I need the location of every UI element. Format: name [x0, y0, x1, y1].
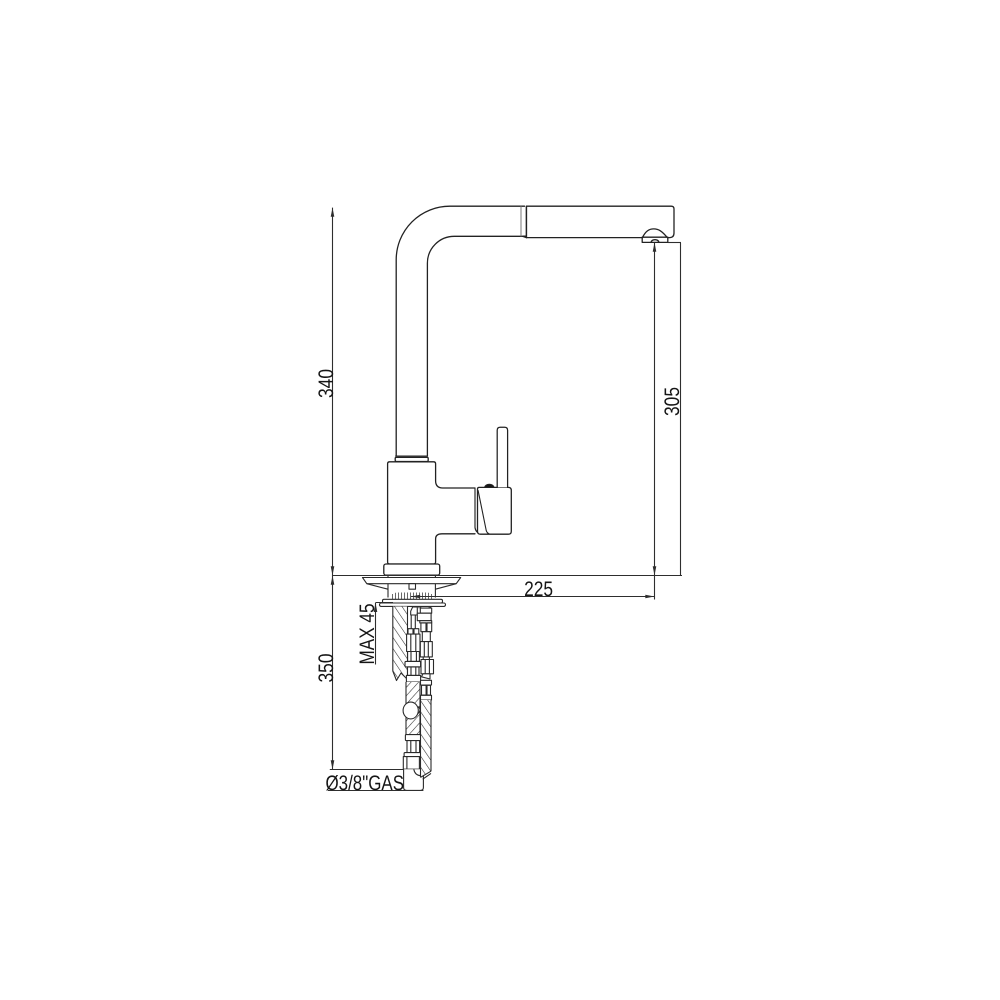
svg-text:Ø3/8"GAS: Ø3/8"GAS [326, 772, 405, 795]
svg-text:340: 340 [315, 369, 338, 398]
svg-text:225: 225 [524, 578, 553, 601]
svg-text:305: 305 [661, 387, 684, 416]
svg-text:MAX 45: MAX 45 [356, 604, 379, 665]
svg-text:350: 350 [315, 654, 338, 683]
